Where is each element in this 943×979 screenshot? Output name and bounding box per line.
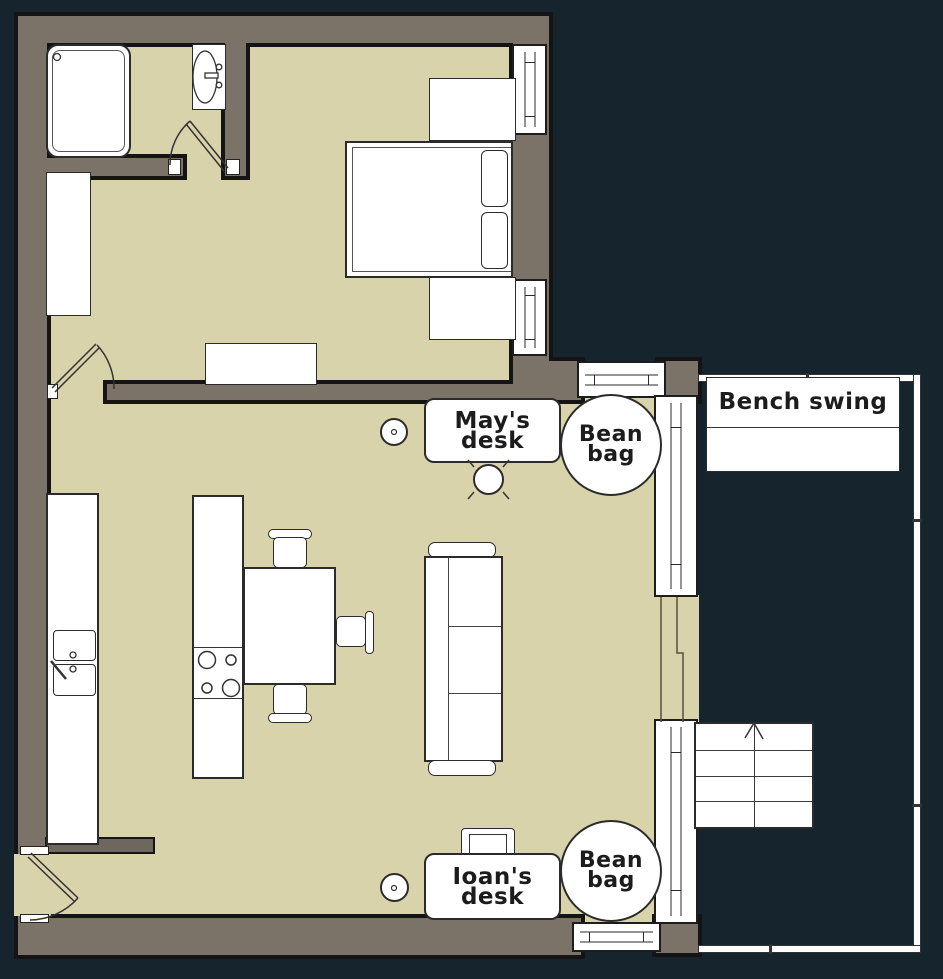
kitchen-sink-basin-top [53, 630, 96, 661]
bedroom-wardrobe-left[interactable] [46, 172, 91, 316]
railing-post-mark [769, 944, 772, 954]
bed-pillow [481, 212, 508, 269]
window-living-bottom [572, 922, 661, 952]
sofa-cushion-line [448, 693, 501, 694]
entry-door-opening [14, 854, 51, 916]
stool-top[interactable] [380, 418, 408, 446]
sofa[interactable] [424, 556, 503, 762]
label-bean-bag-top: Bean bag [560, 394, 662, 496]
label-bean-bag-bottom: Bean bag [560, 820, 662, 922]
dining-chair-bottom[interactable] [273, 684, 307, 715]
cooktop-edge [194, 647, 242, 648]
bathtub-inner-rim [52, 50, 125, 152]
wall-bottom [18, 918, 581, 955]
sofa-backrest-line [448, 558, 449, 760]
entry-door-jamb-bottom [20, 914, 49, 923]
floor-sliding-door-opening [640, 595, 699, 722]
deck-stairs[interactable] [694, 722, 814, 829]
kitchen-sink-basin-bottom [53, 664, 96, 696]
window-bedroom-bottom [512, 279, 547, 356]
bench-swing-divider [707, 427, 899, 428]
bedroom-dresser[interactable] [205, 343, 317, 385]
dining-chair-right[interactable] [336, 616, 366, 647]
label-mays-desk: May's desk [424, 398, 561, 463]
chair-back [268, 713, 312, 723]
mays-desk-chair[interactable] [473, 464, 504, 495]
cooktop-edge [194, 698, 242, 699]
bathroom-sink[interactable] [192, 44, 226, 110]
wall-top [18, 16, 549, 43]
wall-left [18, 16, 47, 955]
bathroom-door-jamb-right [226, 159, 240, 175]
entry-door-jamb-top [20, 846, 49, 855]
sofa-armrest-bottom [428, 760, 496, 776]
sofa-cushion-line [448, 626, 501, 627]
label-bench-swing: Bench swing [706, 377, 900, 426]
bathtub[interactable] [46, 44, 131, 158]
stool-bottom[interactable] [380, 873, 409, 902]
bedroom-door-jamb [47, 384, 58, 399]
deck-railing-bottom [698, 945, 921, 953]
wall-bathroom-right [225, 43, 246, 176]
label-ioans-desk: Ioan's desk [424, 853, 561, 920]
window-living-top [577, 361, 666, 398]
stair-stringer [754, 724, 755, 827]
chair-seat-line [469, 834, 507, 854]
kitchen-island[interactable] [192, 495, 244, 779]
bed-pillow [481, 150, 508, 207]
floor-plan: May's desk Bean bag Bench swing Ioan's d… [0, 0, 943, 979]
deck-railing-right [913, 374, 921, 953]
ioans-desk-chair[interactable] [461, 828, 515, 855]
bathroom-door-jamb-left [168, 159, 181, 175]
dining-table[interactable] [243, 567, 336, 685]
double-bed[interactable] [345, 141, 513, 278]
bedroom-wardrobe-top[interactable] [429, 78, 516, 141]
chair-back [365, 611, 374, 654]
railing-post-mark [912, 804, 922, 807]
dining-chair-top[interactable] [273, 537, 307, 568]
window-bedroom-top [512, 44, 547, 135]
railing-post-mark [912, 519, 922, 522]
bedroom-wardrobe-bottom[interactable] [429, 277, 516, 340]
